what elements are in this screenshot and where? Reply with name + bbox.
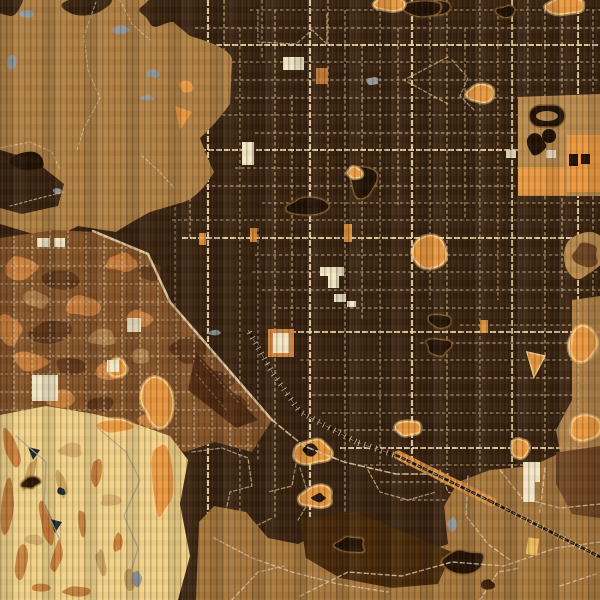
building-cream xyxy=(283,57,304,70)
building-cream xyxy=(32,375,58,401)
park-rect xyxy=(344,224,352,242)
wood-map-print xyxy=(0,0,600,600)
park-rect xyxy=(199,233,206,245)
building-cream xyxy=(334,294,346,302)
building-cream xyxy=(320,267,344,276)
park-blob xyxy=(545,0,583,14)
park-blob xyxy=(571,415,600,440)
sports-field xyxy=(518,167,565,195)
station-building xyxy=(523,480,535,502)
downtown-patch xyxy=(56,358,85,375)
yellow-building xyxy=(526,537,539,555)
station-building xyxy=(523,462,540,482)
building-cream xyxy=(54,238,65,247)
building-cream xyxy=(107,360,119,372)
building-cream xyxy=(506,150,516,158)
building-cream xyxy=(127,318,141,332)
building-cream xyxy=(242,142,254,165)
golf xyxy=(0,406,190,600)
building-cream xyxy=(37,238,50,247)
building-cream xyxy=(328,275,339,288)
park-blob xyxy=(512,439,529,458)
park-rect xyxy=(480,320,488,333)
building-cream xyxy=(347,301,356,307)
building-cream xyxy=(273,333,289,353)
campus xyxy=(506,94,600,196)
park-rect xyxy=(316,68,328,84)
campus-building xyxy=(581,154,590,164)
map-canvas xyxy=(0,0,600,600)
baseball-field xyxy=(542,129,556,143)
track-infield xyxy=(536,111,558,121)
building-cream xyxy=(546,150,556,158)
park-blob xyxy=(396,422,421,436)
park-blob xyxy=(413,236,446,268)
campus-building xyxy=(569,154,578,166)
park-rect xyxy=(250,228,257,242)
